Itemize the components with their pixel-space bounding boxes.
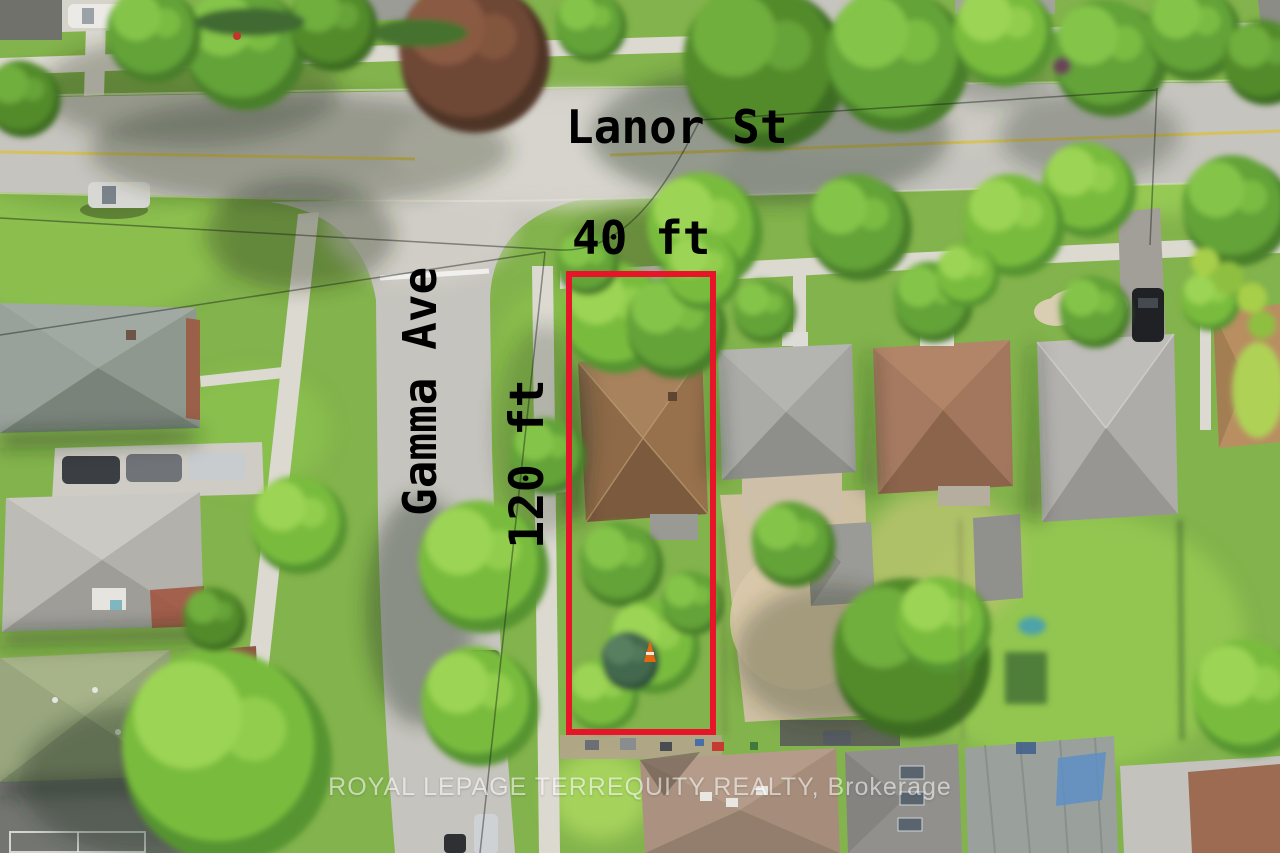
aerial-listing-photo: Lanor St 40 ft Gamma Ave 120 ft ROYAL LE… xyxy=(0,0,1280,853)
lot-depth-label: 120 ft xyxy=(504,379,551,549)
house-b4 xyxy=(1120,756,1280,853)
house-e4 xyxy=(1037,334,1178,522)
street-label-lanor-st: Lanor St xyxy=(566,104,788,150)
lot-width-label: 40 ft xyxy=(572,215,710,261)
lot-boundary-outline xyxy=(566,271,716,735)
house-e3 xyxy=(873,330,1013,506)
street-label-gamma-ave: Gamma Ave xyxy=(397,267,443,516)
pedestrian xyxy=(233,32,241,40)
brokerage-watermark: ROYAL LEPAGE TERREQUITY REALTY, Brokerag… xyxy=(0,773,1280,802)
house-w1 xyxy=(0,303,200,433)
house-e2 xyxy=(718,332,856,480)
